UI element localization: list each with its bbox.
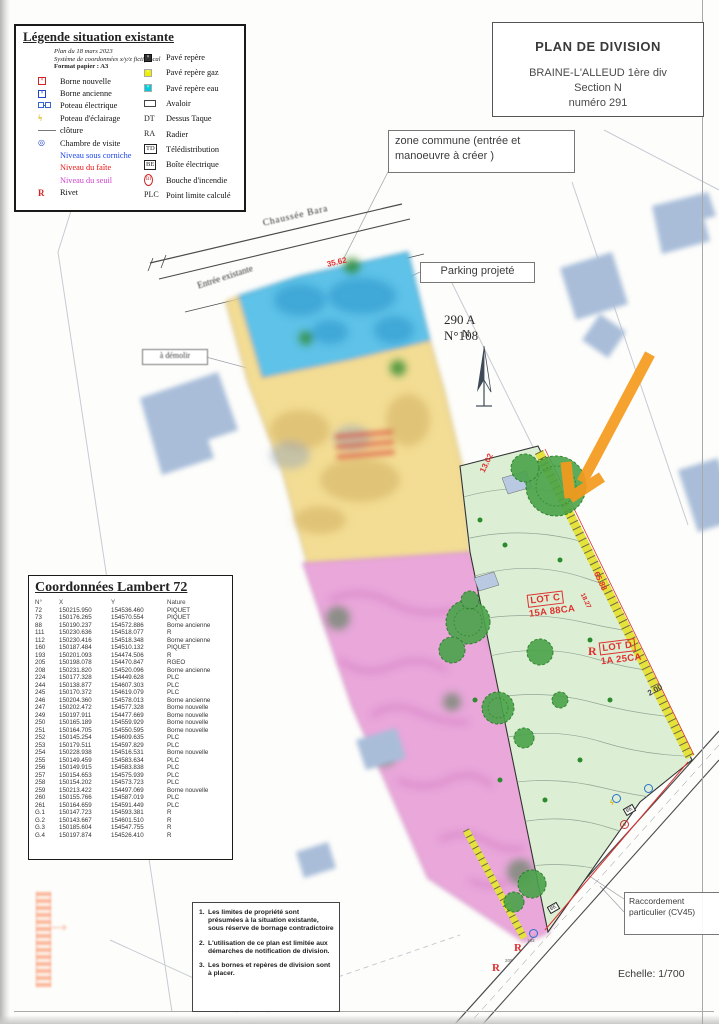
legend-item: RARadier (144, 126, 244, 141)
coord-cell: 154575.939 (111, 772, 167, 780)
coord-row: G.2150143.667154601.510R (35, 817, 229, 825)
coord-cell: R (167, 824, 229, 832)
blurred-lot-label (335, 430, 395, 465)
rivet-mark: R (492, 962, 500, 974)
note-text: Les bornes et repères de division sont à… (208, 962, 335, 978)
legend-item: ×Borne nouvelle (38, 75, 146, 87)
note-item: 3.Les bornes et repères de division sont… (199, 962, 335, 978)
note-text: L'utilisation de ce plan est limitée aux… (208, 940, 335, 956)
rivet-icon: R (38, 189, 60, 197)
manhole-icon (529, 929, 538, 938)
legend-item-label: Borne ancienne (60, 89, 112, 98)
plan-subtitle: BRAINE-L'ALLEUD 1ère div Section N numér… (493, 66, 703, 111)
dimension-18-27: 18.27 (579, 592, 592, 610)
legend-item: ◎Chambre de visite (38, 137, 146, 149)
coord-cell: 224 (35, 674, 59, 682)
note-number: 2. (199, 940, 208, 956)
electric-box-icon: BE (623, 804, 636, 816)
pav-rep-re-gaz-icon: × (144, 69, 166, 77)
coord-cell: Borne nouvelle (167, 727, 229, 735)
legend-item: PLCPoint limite calculé (144, 188, 244, 203)
coord-cell: 250 (35, 719, 59, 727)
yellow-strips (466, 452, 690, 938)
coord-cell: 154573.723 (111, 779, 167, 787)
chambre-de-visite-icon: ◎ (38, 139, 60, 147)
coord-cell: PIQUET (167, 614, 229, 622)
plan-title: PLAN DE DIVISION (493, 39, 703, 54)
coord-cell: G.2 (35, 817, 59, 825)
radier-icon: RA (144, 130, 166, 138)
coord-cell: RGEO (167, 659, 229, 667)
coord-cell: 154510.132 (111, 644, 167, 652)
legend-item-label: Avaloir (166, 99, 191, 108)
legend-item-label: Pavé repère gaz (166, 68, 219, 77)
note-item: 2.L'utilisation de ce plan est limitée a… (199, 940, 335, 956)
coord-cell: 244 (35, 682, 59, 690)
legend-item: BEBoîte électrique (144, 157, 244, 172)
coordinates-table-box: Coordonnées Lambert 72 N°XYNature7215021… (28, 575, 233, 860)
note-number: 3. (199, 962, 208, 978)
coord-header: Y (111, 599, 167, 607)
sheet-frame-bottom (14, 1011, 714, 1012)
legend-item-label: Chambre de visite (60, 139, 120, 148)
coord-cell: 150215.950 (59, 607, 111, 615)
coord-cell: 154547.755 (111, 824, 167, 832)
legend-item: clôture (38, 125, 146, 137)
point-number-193: 193 (527, 938, 535, 943)
coord-row: 72150215.950154536.460PIQUET (35, 607, 229, 615)
coord-row: 247150202.472154577.328Borne nouvelle (35, 704, 229, 712)
coord-cell: PLC (167, 689, 229, 697)
scan-edge-bottom (0, 1015, 719, 1024)
coord-header: Nature (167, 599, 229, 607)
coord-cell: 154470.847 (111, 659, 167, 667)
coord-cell: 251 (35, 727, 59, 735)
coord-cell: PLC (167, 802, 229, 810)
legend-item-label: Télédistribution (166, 145, 219, 154)
coord-cell: 150228.938 (59, 749, 111, 757)
coord-cell: 150179.511 (59, 742, 111, 750)
coord-cell: 150230.636 (59, 629, 111, 637)
coord-cell: 154597.829 (111, 742, 167, 750)
coord-cell: 150138.877 (59, 682, 111, 690)
coord-row: 88150190.237154572.886Borne ancienne (35, 622, 229, 630)
lot-d-label: LOT D 1A 25CA (599, 638, 643, 668)
cl-ture-icon (38, 130, 60, 131)
manhole-icon (644, 784, 653, 793)
lot-c-label: LOT C 15A 88CA (527, 589, 576, 619)
coord-cell: 246 (35, 697, 59, 705)
coord-cell: PLC (167, 734, 229, 742)
coord-header: X (59, 599, 111, 607)
pav-rep-re-icon: × (144, 54, 166, 62)
legend-item-label: Borne nouvelle (60, 77, 111, 86)
coord-cell: G.3 (35, 824, 59, 832)
coord-cell: 259 (35, 787, 59, 795)
coord-cell: 72 (35, 607, 59, 615)
trees (439, 454, 586, 912)
coord-cell: 254 (35, 749, 59, 757)
coordinates-table: N°XYNature72150215.950154536.460PIQUET73… (35, 599, 229, 839)
coord-cell: 150197.911 (59, 712, 111, 720)
coord-cell: 253 (35, 742, 59, 750)
coord-cell: 154601.510 (111, 817, 167, 825)
note-item: 1.Les limites de propriété sont présumée… (199, 909, 335, 934)
dimension-2-00: 2.00 (646, 682, 664, 698)
coord-row: 259150213.422154497.069Borne nouvelle (35, 787, 229, 795)
scale-label: Echelle: 1/700 (618, 968, 685, 980)
coord-cell: 150213.422 (59, 787, 111, 795)
coord-cell: 154526.410 (111, 832, 167, 840)
legend-item-label: Point limite calculé (166, 191, 231, 200)
legend-item-label: Rivet (60, 188, 78, 197)
legend-item-label: Niveau du seuil (60, 176, 112, 185)
coord-cell: 154591.449 (111, 802, 167, 810)
coord-row: 249150197.911154477.669Borne nouvelle (35, 712, 229, 720)
coord-cell: 252 (35, 734, 59, 742)
coord-cell: 247 (35, 704, 59, 712)
coord-cell: 154497.069 (111, 787, 167, 795)
coord-row: 244150138.877154607.303PLC (35, 682, 229, 690)
legend-item-label: Niveau sous corniche (60, 151, 131, 160)
coord-cell: 150143.667 (59, 817, 111, 825)
coord-row: 254150228.938154516.531Borne nouvelle (35, 749, 229, 757)
streetlight-icon: ϟ (610, 801, 614, 807)
notes-box: 1.Les limites de propriété sont présumée… (192, 902, 340, 1012)
dimension-35-62: 35.62 (326, 255, 348, 268)
borne-nouvelle-icon: × (38, 77, 60, 85)
coord-cell: 150154.202 (59, 779, 111, 787)
stamp-vertical-text (36, 892, 51, 987)
coord-cell: 255 (35, 757, 59, 765)
legend-item: ×Borne ancienne (38, 87, 146, 99)
note-number: 1. (199, 909, 208, 934)
coord-row: 246150204.360154578.013Borne ancienne (35, 697, 229, 705)
coord-cell: Borne nouvelle (167, 704, 229, 712)
electric-box-icon: BE (547, 902, 560, 914)
coord-cell: 154520.096 (111, 667, 167, 675)
north-label: N (462, 328, 470, 340)
coord-cell: 150197.874 (59, 832, 111, 840)
bo-te-lectrique-icon: BE (144, 160, 166, 170)
coord-cell: 150164.659 (59, 802, 111, 810)
pav-rep-re-eau-icon: × (144, 84, 166, 92)
coord-cell: 150202.472 (59, 704, 111, 712)
coord-cell: 154570.554 (111, 614, 167, 622)
coord-cell: Borne nouvelle (167, 719, 229, 727)
coord-cell: PLC (167, 779, 229, 787)
coord-row: 250150165.189154559.929Borne nouvelle (35, 719, 229, 727)
legend-item-label: clôture (60, 126, 83, 135)
coord-cell: 245 (35, 689, 59, 697)
callout-parking: Parking projeté (420, 262, 535, 283)
coord-row: 258150154.202154573.723PLC (35, 779, 229, 787)
coord-cell: 150155.766 (59, 794, 111, 802)
street-name-chaussee-bara: Chaussée Bara (262, 204, 329, 229)
coord-cell: 260 (35, 794, 59, 802)
point-limite-calcul--icon: PLC (144, 191, 166, 199)
coord-row: 205150198.078154470.847RGEO (35, 659, 229, 667)
sheet-frame-right (702, 0, 703, 1024)
point-number-205: 205 (505, 958, 513, 963)
coord-row: 256150149.915154583.838PLC (35, 764, 229, 772)
coord-cell: 154474.506 (111, 652, 167, 660)
coord-cell: 154477.669 (111, 712, 167, 720)
coord-cell: PLC (167, 674, 229, 682)
coord-cell: PLC (167, 772, 229, 780)
poteau-d-clairage-icon: ϟ (38, 114, 60, 122)
coord-cell: 154619.079 (111, 689, 167, 697)
title-block: PLAN DE DIVISION BRAINE-L'ALLEUD 1ère di… (492, 22, 704, 117)
coord-row: 255150149.459154583.634PLC (35, 757, 229, 765)
legend-item-label: Bouche d'incendie (166, 176, 227, 185)
coord-row: 160150187.484154510.132PIQUET (35, 644, 229, 652)
orange-arrow (566, 354, 650, 498)
legend-item: Niveau du seuil (38, 174, 146, 186)
coord-row: G.3150185.604154547.755R (35, 824, 229, 832)
coord-cell: Borne ancienne (167, 697, 229, 705)
legend-item: ϟPoteau d'éclairage (38, 112, 146, 124)
contour-lines (440, 489, 719, 885)
coord-cell: 154587.019 (111, 794, 167, 802)
coord-cell: 150198.078 (59, 659, 111, 667)
coord-cell: Borne nouvelle (167, 787, 229, 795)
note-text: Les limites de propriété sont présumées … (208, 909, 335, 934)
coord-cell: 154577.328 (111, 704, 167, 712)
callout-raccordement: Raccordement particulier (CV45) (624, 892, 719, 935)
coord-cell: 258 (35, 779, 59, 787)
legend-item-label: Boîte électrique (166, 160, 219, 169)
coord-cell: 88 (35, 622, 59, 630)
coord-cell: 154518.348 (111, 637, 167, 645)
coord-cell: 205 (35, 659, 59, 667)
coord-cell: 150154.653 (59, 772, 111, 780)
callout-zone-commune: zone commune (entrée et manoeuvre à crée… (388, 130, 575, 173)
coord-cell: 249 (35, 712, 59, 720)
legend-box: Légende situation existante Plan du 18 m… (14, 24, 246, 212)
dimension-65-88: 65.88 (592, 570, 609, 592)
stamp-arrow-icon: → (46, 908, 72, 939)
coord-cell: 150187.484 (59, 644, 111, 652)
coord-cell: PLC (167, 742, 229, 750)
coord-row: 111150230.636154518.077R (35, 629, 229, 637)
coord-row: 253150179.511154597.829PLC (35, 742, 229, 750)
coord-cell: 112 (35, 637, 59, 645)
coord-row: 251150164.705154550.595Borne nouvelle (35, 727, 229, 735)
coord-cell: 154609.635 (111, 734, 167, 742)
coord-cell: Borne ancienne (167, 622, 229, 630)
coord-cell: 154550.595 (111, 727, 167, 735)
legend-item: Poteau électrique (38, 100, 146, 112)
coord-cell: 160 (35, 644, 59, 652)
coord-cell: 154559.929 (111, 719, 167, 727)
coord-cell: 154536.460 (111, 607, 167, 615)
coord-cell: Borne nouvelle (167, 712, 229, 720)
coord-cell: 150164.705 (59, 727, 111, 735)
legend-item: Niveau du faîte (38, 162, 146, 174)
legend-item-label: Radier (166, 130, 188, 139)
legend-item-label: Pavé repère eau (166, 84, 219, 93)
zone-detail-blurred (270, 258, 533, 886)
callout-a-demolir: à démolir (142, 349, 208, 365)
coord-cell: R (167, 629, 229, 637)
coord-cell: 150147.723 (59, 809, 111, 817)
coord-cell: 154518.077 (111, 629, 167, 637)
legend-item: ×Pavé repère eau (144, 81, 244, 96)
coord-cell: R (167, 817, 229, 825)
avaloir-icon (144, 100, 166, 107)
coord-cell: 256 (35, 764, 59, 772)
coord-cell: 150149.459 (59, 757, 111, 765)
coord-row: 193150201.093154474.506R (35, 652, 229, 660)
legend-column-right: ×Pavé repère×Pavé repère gaz×Pavé repère… (144, 50, 244, 203)
t-l-distribution-icon: TD (144, 144, 166, 154)
coord-cell: 150185.604 (59, 824, 111, 832)
coord-cell: R (167, 652, 229, 660)
dessus-taque-icon: DT (144, 115, 166, 123)
coord-cell: 154583.634 (111, 757, 167, 765)
coord-cell: PLC (167, 682, 229, 690)
coord-cell: PLC (167, 764, 229, 772)
coord-cell: 150176.265 (59, 614, 111, 622)
borne-ancienne-icon: × (38, 90, 60, 98)
coord-cell: 150149.915 (59, 764, 111, 772)
coord-cell: 150231.820 (59, 667, 111, 675)
legend-item-label: Niveau du faîte (60, 163, 111, 172)
coord-cell: PLC (167, 794, 229, 802)
coord-cell: 154593.381 (111, 809, 167, 817)
coord-cell: 154572.886 (111, 622, 167, 630)
plan-sheet: Légende situation existante Plan du 18 m… (0, 0, 719, 1024)
coord-cell: 150230.416 (59, 637, 111, 645)
legend-column-left: ×Borne nouvelle×Borne anciennePoteau éle… (38, 75, 146, 199)
coord-cell: 261 (35, 802, 59, 810)
coord-cell: 150145.254 (59, 734, 111, 742)
coord-cell: PIQUET (167, 644, 229, 652)
coord-cell: Borne ancienne (167, 637, 229, 645)
scan-edge-left (0, 0, 10, 1024)
coord-row: 260150155.766154587.019PLC (35, 794, 229, 802)
coord-cell: G.1 (35, 809, 59, 817)
north-arrow-icon (476, 346, 492, 406)
legend-item-label: Dessus Taque (166, 114, 212, 123)
coord-cell: Borne ancienne (167, 667, 229, 675)
legend-item: DTDessus Taque (144, 111, 244, 126)
coord-cell: 154516.531 (111, 749, 167, 757)
dimension-13-02: 13.02 (478, 452, 495, 474)
coord-cell: PIQUET (167, 607, 229, 615)
legend-item: TDTélédistribution (144, 142, 244, 157)
coord-cell: PLC (167, 757, 229, 765)
coord-cell: 193 (35, 652, 59, 660)
legend-item-label: Poteau d'éclairage (60, 114, 120, 123)
coord-cell: 73 (35, 614, 59, 622)
legend-item-label: Pavé repère (166, 53, 205, 62)
coord-row: 224150177.328154449.628PLC (35, 674, 229, 682)
coord-cell: 150190.237 (59, 622, 111, 630)
rivet-mark: R (514, 942, 522, 954)
coord-cell: 111 (35, 629, 59, 637)
coord-cell: 257 (35, 772, 59, 780)
coord-row: 252150145.254154609.635PLC (35, 734, 229, 742)
coord-row: 73150176.265154570.554PIQUET (35, 614, 229, 622)
zone-blue (238, 252, 430, 378)
coord-row: G.1150147.723154593.381R (35, 809, 229, 817)
legend-item: Niveau sous corniche (38, 149, 146, 161)
zone-green-lot-c (439, 446, 719, 938)
coord-cell: 208 (35, 667, 59, 675)
coord-header: N° (35, 599, 59, 607)
bouche-d-incendie-icon: BI (144, 174, 166, 186)
coord-cell: 154449.628 (111, 674, 167, 682)
coord-cell: 150204.360 (59, 697, 111, 705)
coord-row: 112150230.416154518.348Borne ancienne (35, 637, 229, 645)
legend-item: ×Pavé repère (144, 50, 244, 65)
fire-hydrant-icon: BI (620, 820, 629, 829)
legend-item: Avaloir (144, 96, 244, 111)
legend-item: BIBouche d'incendie (144, 172, 244, 187)
coord-cell: 154578.013 (111, 697, 167, 705)
coord-cell: 150177.328 (59, 674, 111, 682)
rivet-mark: R (588, 644, 597, 659)
coord-row: 257150154.653154575.939PLC (35, 772, 229, 780)
zone-yellow (226, 296, 470, 566)
coord-cell: 150165.189 (59, 719, 111, 727)
coord-row: 208150231.820154520.096Borne ancienne (35, 667, 229, 675)
legend-title: Légende situation existante (23, 29, 244, 45)
legend-item: RRivet (38, 187, 146, 199)
coord-cell: 154607.303 (111, 682, 167, 690)
coord-row: G.4150197.874154526.410R (35, 832, 229, 840)
coordinates-table-title: Coordonnées Lambert 72 (35, 580, 232, 596)
coord-cell: R (167, 832, 229, 840)
coord-cell: R (167, 809, 229, 817)
coord-cell: Borne nouvelle (167, 749, 229, 757)
legend-item-label: Poteau électrique (60, 101, 117, 110)
legend-item: ×Pavé repère gaz (144, 65, 244, 80)
parcel-boundary-lines (58, 130, 719, 1012)
coord-row: 261150164.659154591.449PLC (35, 802, 229, 810)
coord-cell: 150201.093 (59, 652, 111, 660)
poteau-lectrique-icon (38, 103, 60, 108)
coord-cell: 154583.838 (111, 764, 167, 772)
coord-row: 245150170.372154619.079PLC (35, 689, 229, 697)
entrance-label: Entrée existante (196, 263, 254, 290)
coord-cell: 150170.372 (59, 689, 111, 697)
coord-cell: G.4 (35, 832, 59, 840)
